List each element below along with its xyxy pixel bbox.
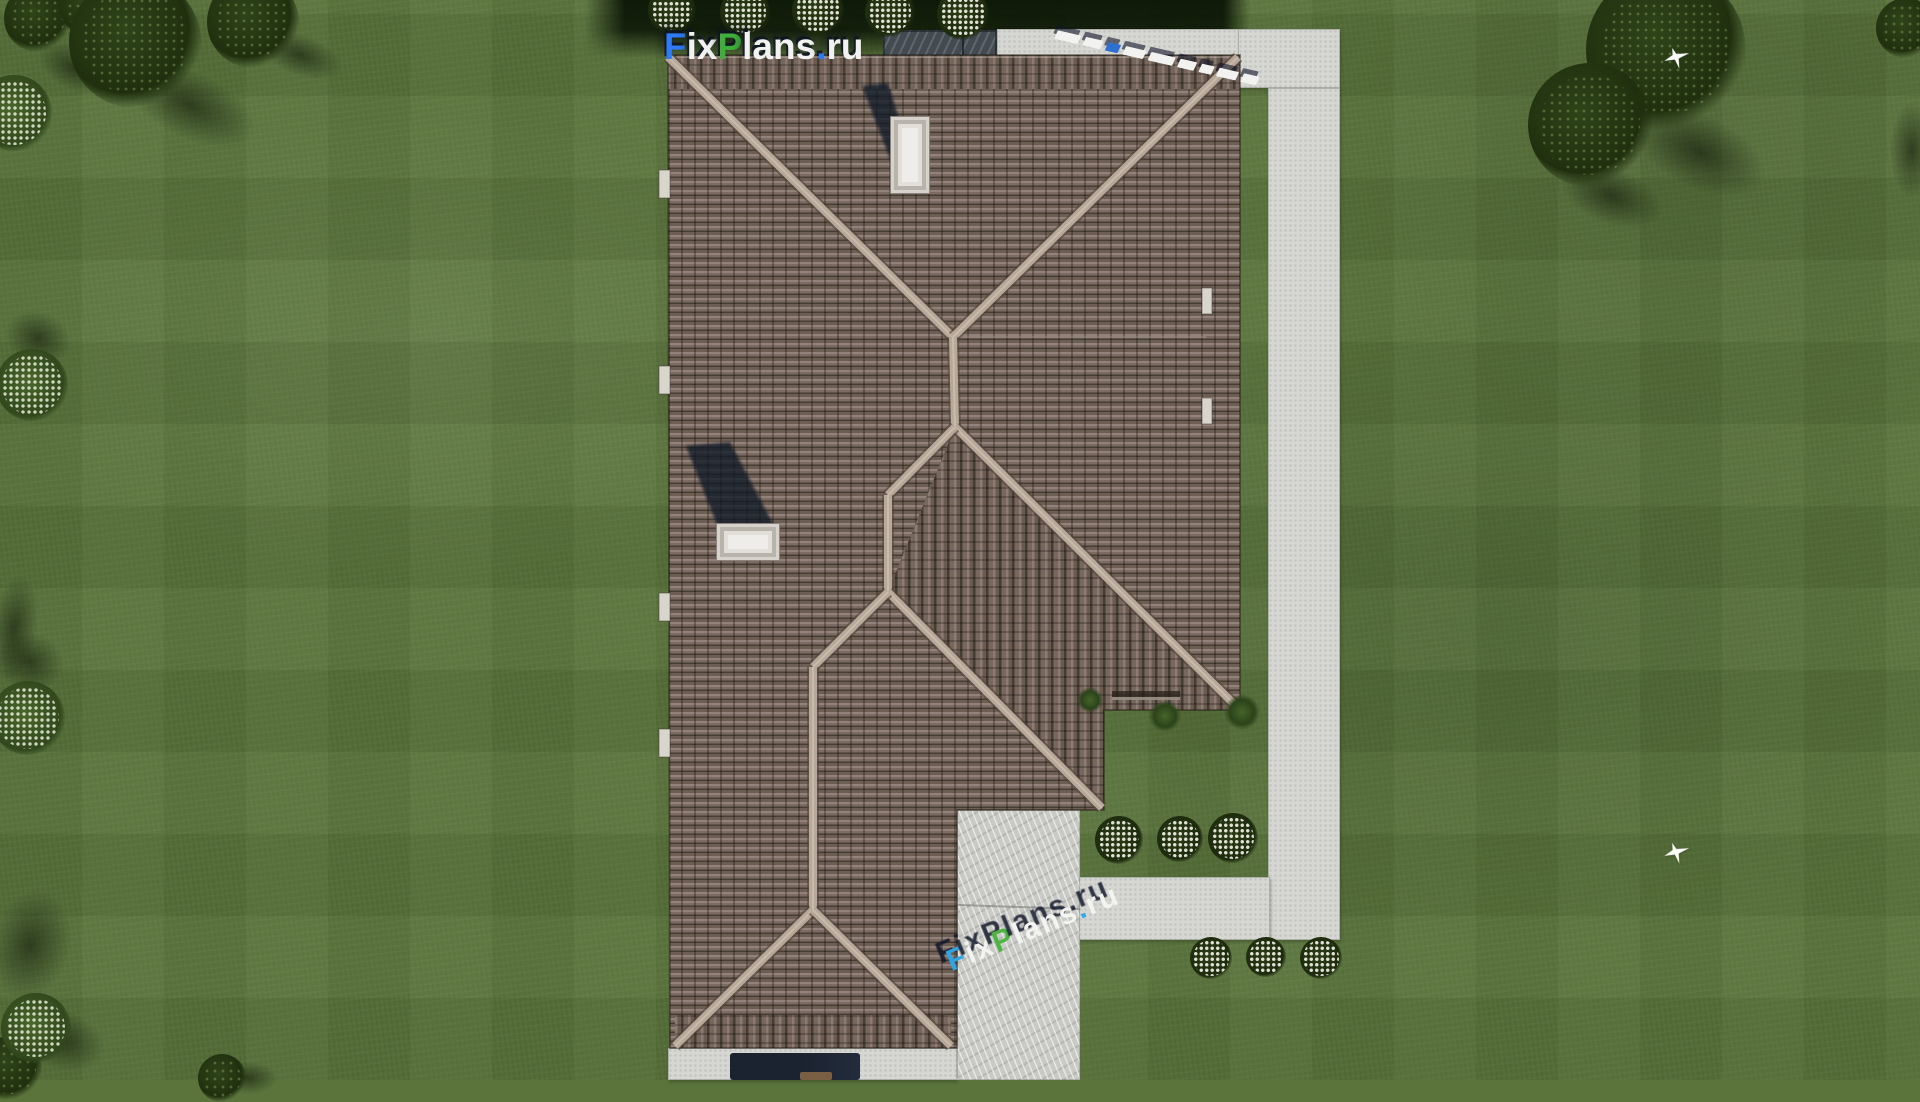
grass-tuft xyxy=(1149,700,1181,732)
chimney-1 xyxy=(890,116,930,194)
tree xyxy=(198,1054,246,1102)
watermark-letter: lans xyxy=(742,26,816,67)
watermark-letter: . xyxy=(816,26,826,67)
light-bush xyxy=(1,993,71,1063)
white-flower-bush xyxy=(1300,937,1342,979)
white-flower-bush xyxy=(1246,937,1286,977)
white-flower-bush xyxy=(1208,813,1258,863)
white-flower-bush xyxy=(1157,816,1203,862)
grass-tuft xyxy=(1077,687,1103,713)
white-flower-bush xyxy=(1095,816,1143,864)
white-flower-bush xyxy=(1190,937,1232,979)
watermark-letter: ix xyxy=(687,26,718,67)
watermark-letter: P xyxy=(717,26,742,67)
porch-detail xyxy=(800,1072,832,1080)
watermark-letter: ru xyxy=(826,26,863,67)
vertical-walkway xyxy=(1268,88,1340,940)
watermark-letter: F xyxy=(664,26,687,67)
grass-tuft xyxy=(1224,694,1260,730)
porch-dark xyxy=(730,1053,860,1080)
fixplans-logo-watermark: FixPlans.ru xyxy=(664,26,863,68)
chimney-2 xyxy=(716,523,780,561)
roof-bottom-eave-band xyxy=(675,1015,951,1048)
tree xyxy=(1528,63,1652,187)
